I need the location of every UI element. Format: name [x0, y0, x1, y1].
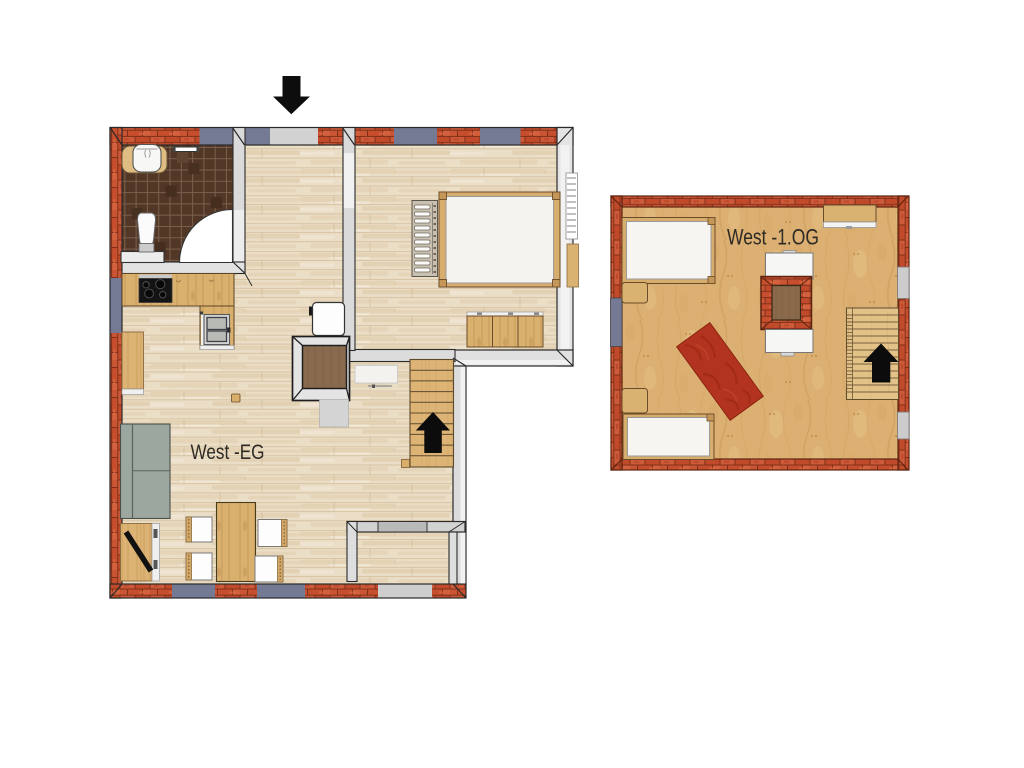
svg-text:West -EG: West -EG	[191, 441, 265, 464]
svg-text:West -1.OG: West -1.OG	[727, 225, 819, 250]
